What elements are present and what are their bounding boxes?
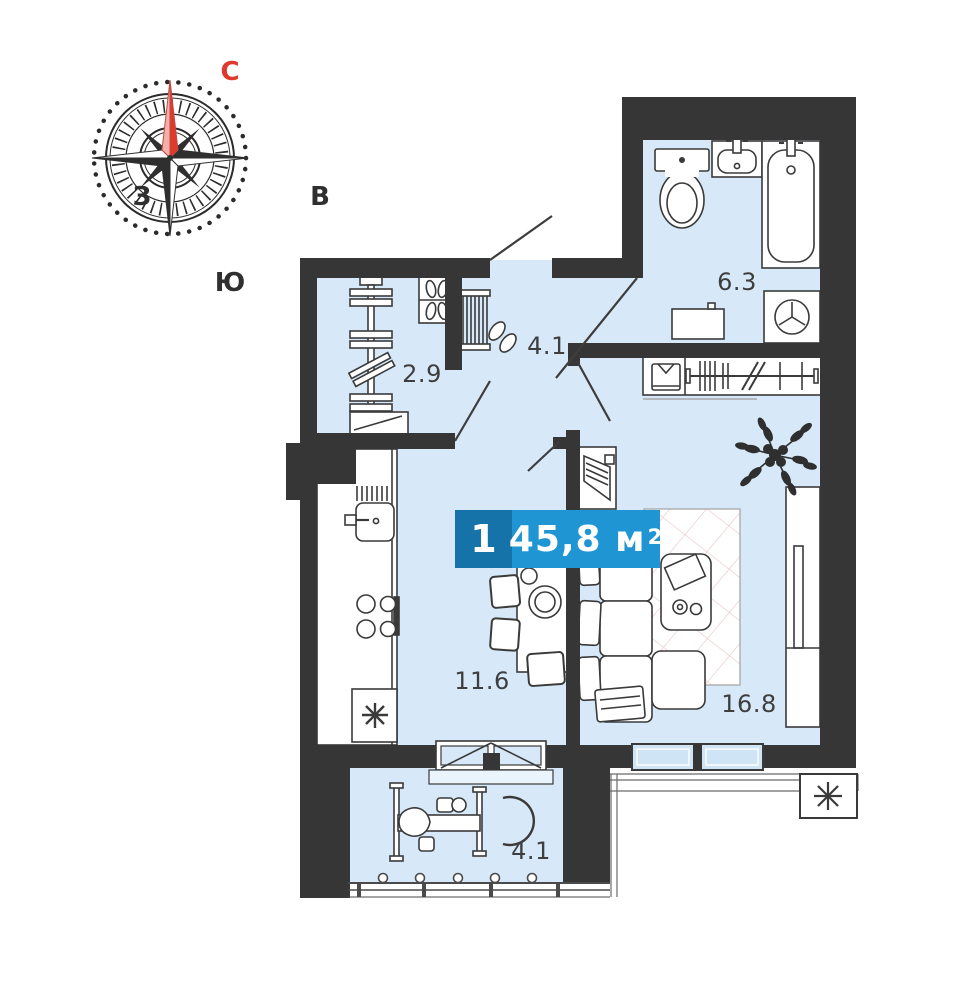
pilaster-left [286, 443, 300, 500]
area-unit: м [615, 519, 645, 560]
room-count-badge: 1 [455, 510, 512, 568]
bathroom-cabinet-icon [672, 303, 724, 339]
compass-rose-icon [60, 40, 280, 270]
total-area-badge: 45,8 м2 [512, 510, 660, 568]
shirt-icon [652, 364, 680, 390]
wardrobe-icon [786, 487, 820, 727]
fridge-snowflake-icon [352, 689, 397, 742]
compass-south-label: Ю [215, 268, 246, 298]
vent-shaft-icon [317, 449, 356, 484]
toilet-icon [655, 149, 709, 228]
storage-cabinet-icon [350, 412, 408, 434]
door-swing-entrance [490, 216, 552, 260]
room-label-storage: 2.9 [402, 360, 442, 388]
area-superscript: 2 [648, 525, 664, 549]
washing-machine-icon [764, 291, 820, 343]
window-icon [632, 744, 763, 770]
air-conditioner-icon [800, 774, 857, 818]
room-label-living: 16.8 [721, 690, 776, 718]
floor-plan-page: С В З Ю 2.9 4.1 6.3 11.6 16.8 4.1 1 45,8… [0, 0, 969, 1001]
coat-rack-icon [643, 357, 821, 399]
wall-storage-divider [445, 278, 462, 370]
compass-west-label: З [133, 182, 151, 212]
wall-living-bottom-right [763, 745, 856, 768]
room-label-hallway: 4.1 [527, 332, 567, 360]
compass-north-needle [162, 80, 178, 158]
compass-east-label: В [310, 182, 330, 212]
wall-left [300, 258, 317, 768]
balcony-door-icon [429, 741, 553, 784]
blanket-icon [595, 686, 646, 722]
compass-north-label: С [220, 57, 239, 87]
area-value: 45,8 [509, 519, 602, 560]
wall-balcony-left [300, 768, 350, 898]
washbasin-icon [712, 136, 762, 177]
room-label-bathroom: 6.3 [717, 268, 757, 296]
room-label-balcony: 4.1 [511, 837, 551, 865]
bathtub-icon [762, 137, 820, 268]
wall-bathroom-bottom [568, 343, 856, 358]
wall-kitchen-bottom [317, 745, 437, 768]
area-badge: 1 45,8 м2 [455, 510, 660, 568]
wall-right [820, 97, 856, 768]
room-label-kitchen: 11.6 [454, 667, 509, 695]
wall-living-bottom-left [580, 745, 632, 768]
wall-top-left [300, 258, 490, 278]
wall-kitchen-living-lower [566, 567, 580, 745]
wall-balcony-right [563, 768, 610, 883]
coffee-table-icon [661, 554, 711, 630]
wall-hall-kitchen [317, 433, 455, 449]
wall-kitchen-living-upper [566, 430, 580, 510]
tv-stand-icon [578, 447, 616, 509]
